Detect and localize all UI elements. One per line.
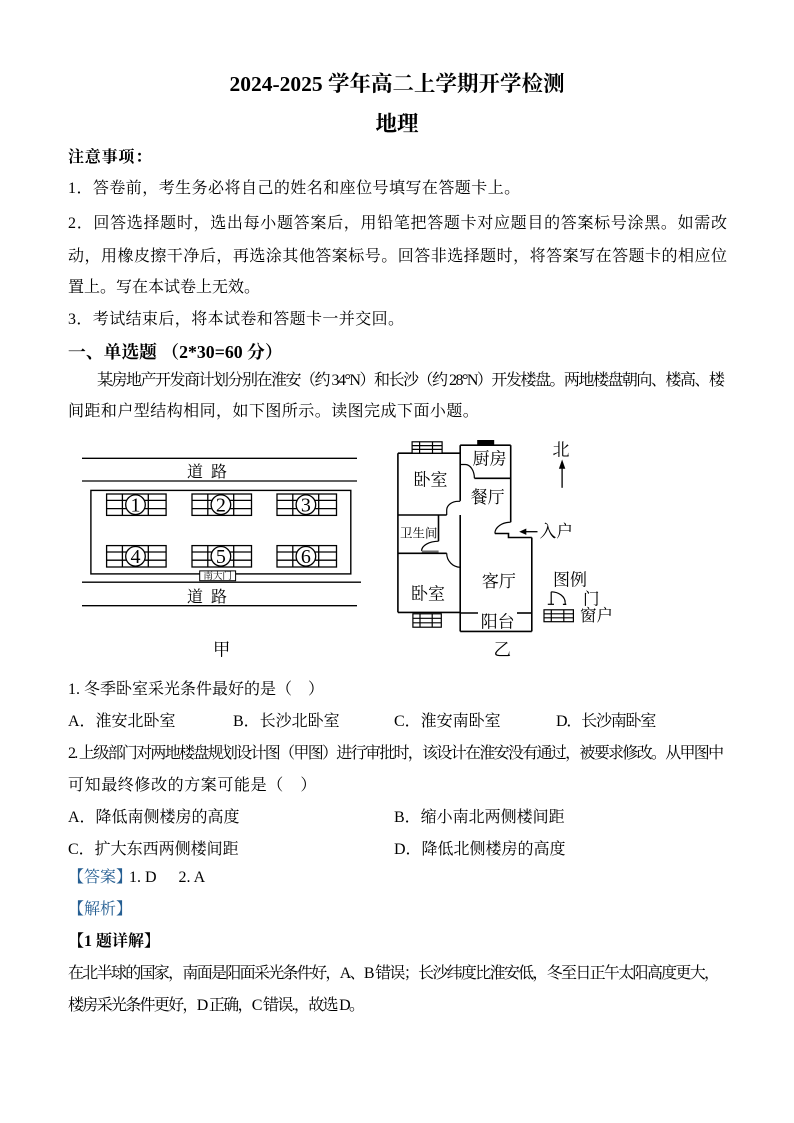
svg-text:卧室: 卧室 xyxy=(414,470,448,490)
svg-text:图例: 图例 xyxy=(553,571,587,590)
svg-text:乙: 乙 xyxy=(493,639,511,659)
svg-text:南大门: 南大门 xyxy=(203,570,232,582)
svg-text:窗户: 窗户 xyxy=(580,606,613,625)
svg-text:厨房: 厨房 xyxy=(473,450,507,469)
svg-text:阳台: 阳台 xyxy=(481,613,515,632)
svg-text:卫生间: 卫生间 xyxy=(400,526,438,541)
svg-text:甲: 甲 xyxy=(213,639,231,659)
svg-text:3: 3 xyxy=(301,495,311,517)
svg-text:入户: 入户 xyxy=(540,522,574,541)
svg-text:卧室: 卧室 xyxy=(411,584,445,604)
svg-text:1: 1 xyxy=(131,495,141,517)
svg-text:北: 北 xyxy=(553,440,570,459)
svg-text:道 路: 道 路 xyxy=(187,588,227,606)
svg-text:5: 5 xyxy=(216,546,226,568)
svg-text:4: 4 xyxy=(131,546,141,568)
svg-text:餐厅: 餐厅 xyxy=(471,487,505,507)
svg-text:6: 6 xyxy=(301,546,311,568)
svg-text:2: 2 xyxy=(216,495,226,517)
svg-text:客厅: 客厅 xyxy=(482,572,516,591)
svg-text:道 路: 道 路 xyxy=(187,463,227,481)
